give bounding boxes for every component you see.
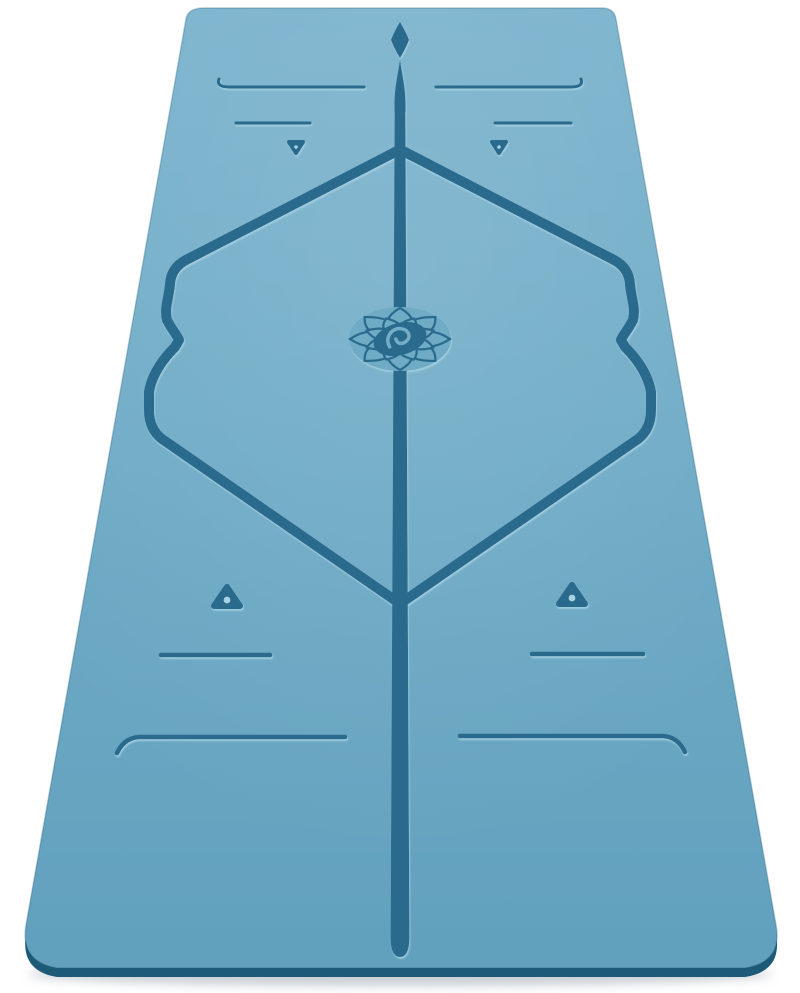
photo-canvas (0, 0, 800, 993)
top-triangle-dot-left (294, 145, 298, 149)
bottom-triangle-dot-left (224, 597, 231, 604)
bottom-triangle-dot-right (569, 595, 576, 602)
yoga-mat-illustration (0, 0, 800, 993)
product-photo (0, 0, 800, 993)
lotus-logo (349, 307, 451, 371)
top-triangle-dot-right (497, 145, 501, 149)
